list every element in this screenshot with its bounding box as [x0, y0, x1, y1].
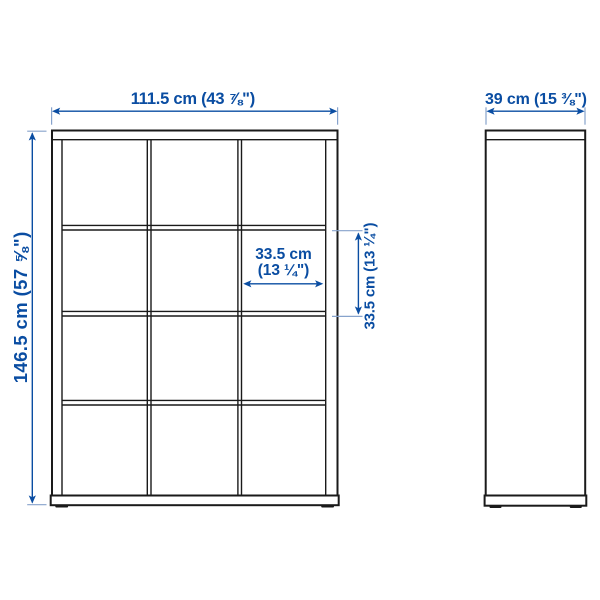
- svg-text:39 cm (15 ⅜"): 39 cm (15 ⅜"): [485, 91, 587, 108]
- svg-text:(13 ¼"): (13 ¼"): [258, 262, 310, 279]
- svg-text:33.5 cm: 33.5 cm: [255, 246, 312, 263]
- svg-text:111.5 cm (43 ⅞"): 111.5 cm (43 ⅞"): [131, 90, 256, 108]
- svg-text:33.5 cm (13 ¼"): 33.5 cm (13 ¼"): [362, 223, 379, 330]
- svg-text:146.5 cm (57 ⅝"): 146.5 cm (57 ⅝"): [10, 232, 31, 384]
